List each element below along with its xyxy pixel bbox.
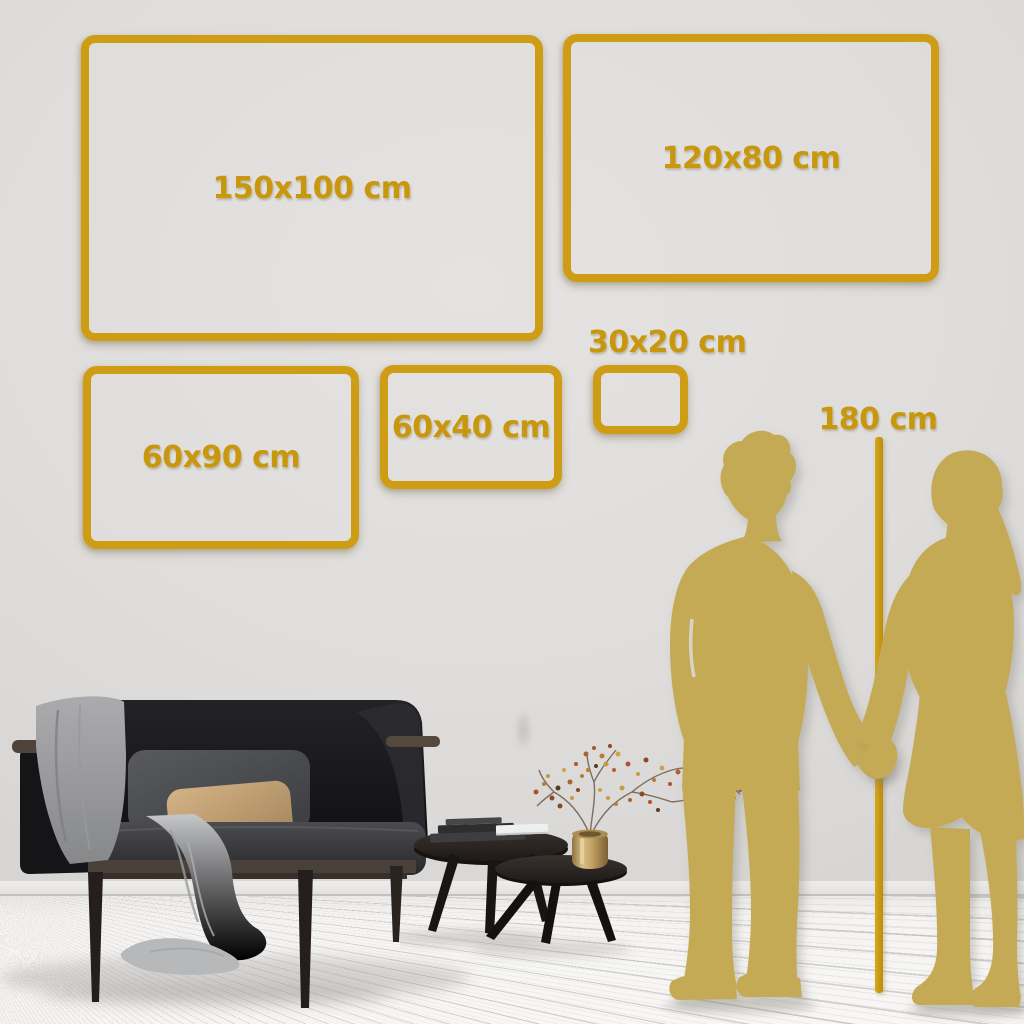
- man-silhouette: [669, 431, 896, 1000]
- size-label-150x100: 150x100 cm: [212, 171, 411, 206]
- size-guide-scene: 150x100 cm 120x80 cm 60x90 cm 60x40 cm 3…: [0, 0, 1024, 1024]
- size-label-30x20: 30x20 cm: [588, 325, 746, 360]
- woman-silhouette: [856, 450, 1024, 1007]
- frame-120x80: 120x80 cm: [563, 34, 939, 282]
- size-label-60x40: 60x40 cm: [392, 410, 550, 445]
- frame-60x40: 60x40 cm: [380, 365, 562, 489]
- size-label-120x80: 120x80 cm: [662, 141, 841, 176]
- size-label-60x90: 60x90 cm: [142, 440, 300, 475]
- couple-silhouette: [640, 425, 1024, 1024]
- frame-30x20: [593, 365, 688, 434]
- frame-150x100: 150x100 cm: [81, 35, 543, 341]
- frame-60x90: 60x90 cm: [83, 366, 359, 549]
